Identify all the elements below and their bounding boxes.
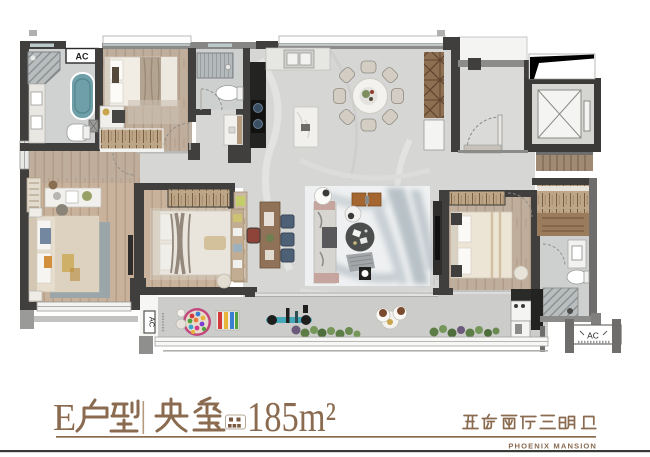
- svg-text:E: E: [53, 397, 76, 439]
- svg-text:AC: AC: [148, 317, 157, 328]
- svg-text:AC: AC: [76, 52, 89, 62]
- svg-text:185m²: 185m²: [247, 395, 336, 441]
- svg-text:PHOENIX MANSION: PHOENIX MANSION: [508, 442, 597, 451]
- svg-text:AC: AC: [587, 331, 599, 341]
